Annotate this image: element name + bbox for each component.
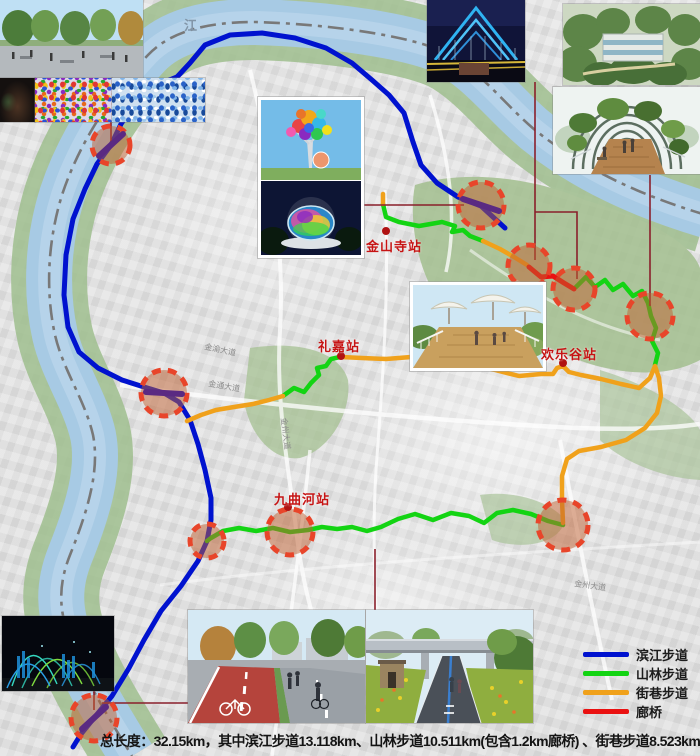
- station-circle: [627, 293, 673, 339]
- road-label-jinyu: 金渝大道: [204, 341, 237, 357]
- photo-night-light-installation: [2, 616, 114, 691]
- photo-greenway-underpass: [366, 610, 533, 723]
- legend-line-binjiang: [583, 652, 629, 657]
- legend-row-shanlin: 山林步道: [583, 664, 688, 683]
- photo-blue-mosaic-art: [112, 78, 205, 122]
- river-label: 江: [184, 18, 197, 33]
- station-label-lijia: 礼嘉站: [318, 336, 360, 355]
- legend-row-jiexiang: 街巷步道: [583, 683, 688, 702]
- legend-row-langqiao: 廊桥: [583, 702, 688, 721]
- photo-night-art: [0, 78, 35, 122]
- legend-label-binjiang: 滨江步道: [636, 645, 688, 664]
- legend-row-binjiang: 滨江步道: [583, 645, 688, 664]
- photo-color-mosaic-art: [35, 78, 112, 122]
- legend-line-langqiao: [583, 709, 629, 714]
- station-circle: [267, 509, 313, 555]
- photo-tree-sculpture: [261, 100, 361, 180]
- legend-label-langqiao: 廊桥: [636, 702, 662, 721]
- photo-plaza-rendering: [0, 0, 143, 78]
- station-circle: [553, 268, 595, 310]
- photo-canopy-boardwalk: [410, 282, 546, 371]
- legend-line-jiexiang: [583, 690, 629, 695]
- photo-glowing-egg: [261, 181, 361, 255]
- map-legend: 滨江步道 山林步道 街巷步道 廊桥: [583, 645, 688, 721]
- photo-night-bridge: [427, 0, 525, 82]
- total-length-caption: 总长度：32.15km，其中滨江步道13.118km、山林步道10.511km(…: [100, 731, 700, 751]
- road-label-jintong: 金通大道: [208, 378, 241, 393]
- road-label-jinzhou-h: 金州大道: [574, 578, 607, 592]
- station-label-jiuquhe: 九曲河站: [274, 489, 330, 508]
- legend-label-shanlin: 山林步道: [636, 664, 688, 683]
- legend-line-shanlin: [583, 671, 629, 676]
- photo-bike-lane-street: [188, 610, 365, 723]
- photo-forest-building: [563, 4, 700, 85]
- station-circle: [190, 524, 224, 558]
- trail-map-poster: 江 金渝大道 金通大道 金州大道 金州大道: [0, 0, 700, 756]
- station-circle: [508, 245, 550, 287]
- photo-panel-sculptures: [258, 97, 364, 258]
- station-circle: [538, 500, 588, 550]
- legend-label-jiexiang: 街巷步道: [636, 683, 688, 702]
- station-label-huanlegu: 欢乐谷站: [541, 344, 597, 363]
- photo-pergola-corridor: [553, 87, 700, 174]
- station-label-jinshansi: 金山寺站: [366, 236, 422, 255]
